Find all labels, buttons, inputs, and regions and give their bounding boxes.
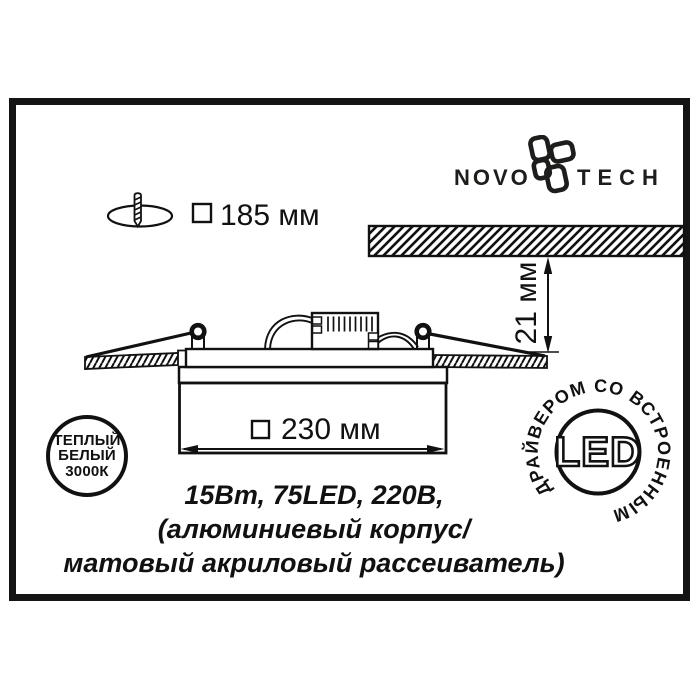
width-dimension-label: 230 мм: [281, 413, 381, 446]
square-symbol: [193, 204, 211, 222]
spec-sheet: NOVO TECH 185 мм: [0, 0, 700, 700]
ceiling-section: [369, 226, 684, 256]
square-symbol: [252, 421, 269, 438]
led-badge-center: LED: [555, 428, 642, 475]
spec-line-diffuser: матовый акриловый рассеиватель): [14, 546, 614, 580]
pivot-pin-right: [417, 325, 430, 338]
spec-line-housing: (алюминиевый корпус/: [14, 512, 614, 546]
depth-dimension-label: 21 мм: [510, 262, 543, 345]
spec-line-power: 15Вт, 75LED, 220В,: [14, 478, 614, 512]
color-temp-line3: 3000К: [65, 464, 109, 480]
driver-box: [312, 313, 378, 349]
technical-drawing: 185 мм 21 мм: [0, 0, 700, 700]
cutout-drill-icon: [108, 193, 172, 226]
mounting-plate: [186, 349, 433, 367]
cutout-dimension: 185 мм: [193, 199, 320, 232]
spring-clip-right: [433, 355, 547, 368]
spec-text: 15Вт, 75LED, 220В, (алюминиевый корпус/ …: [14, 478, 614, 580]
pivot-pin-left: [192, 325, 205, 338]
trim-flange: [179, 367, 447, 383]
luminaire-section: 230 мм: [85, 313, 547, 453]
cutout-dimension-label: 185 мм: [220, 199, 320, 232]
color-temp-line1: ТЕПЛЫЙ: [53, 433, 120, 449]
depth-dimension: 21 мм: [510, 257, 559, 353]
color-temp-line2: БЕЛЫЙ: [58, 448, 116, 464]
